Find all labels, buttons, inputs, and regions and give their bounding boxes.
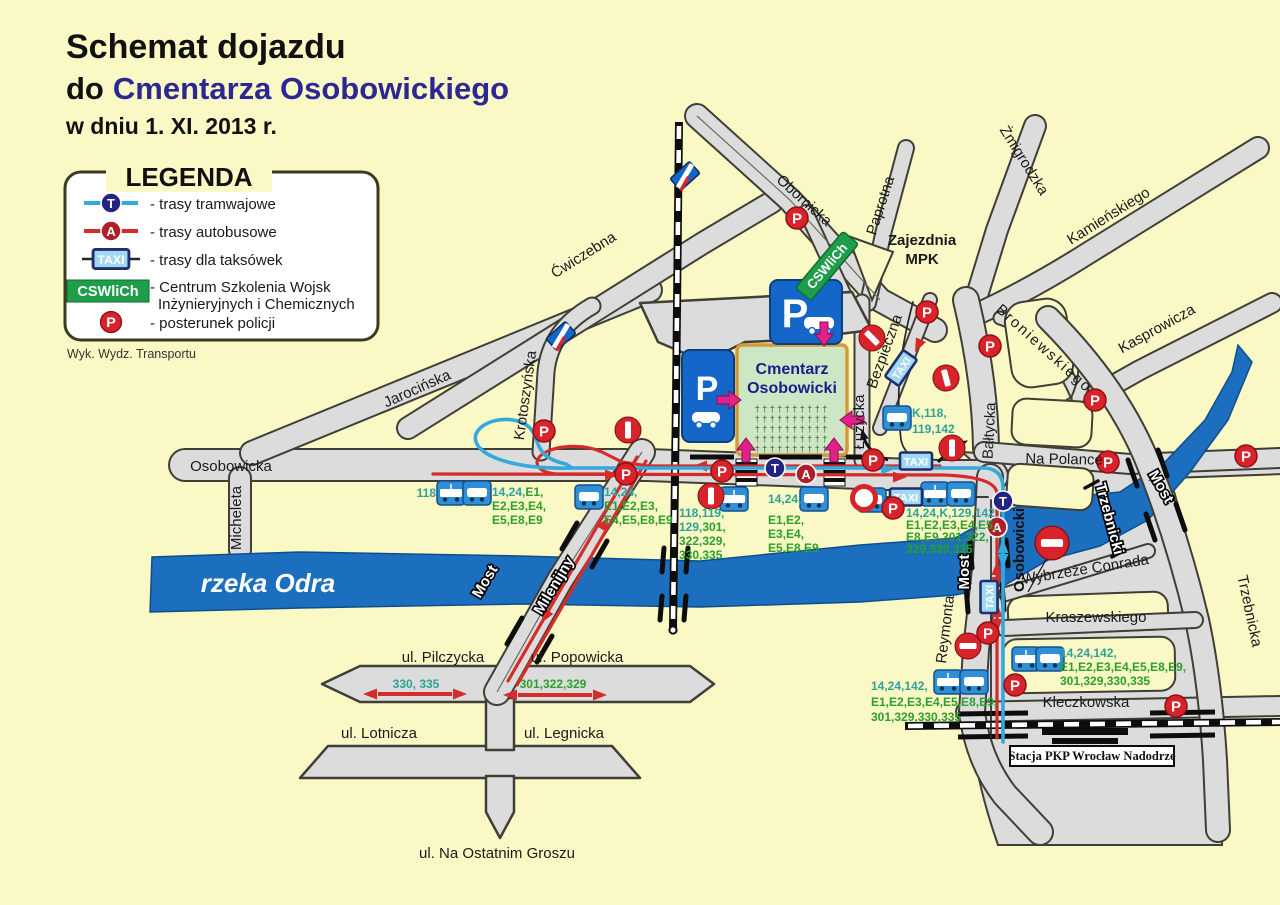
svg-text:E1,E2,: E1,E2, xyxy=(768,513,804,527)
taxi-badge xyxy=(900,453,932,470)
svg-text:E1,E2,E3,: E1,E2,E3, xyxy=(604,499,658,513)
street-label-osobowicka: Osobowicka xyxy=(190,458,272,475)
svg-text:† † † † † † † † † †: † † † † † † † † † † xyxy=(755,434,828,444)
street-label-micheleta: Micheleta xyxy=(228,485,245,550)
svg-text:301,329,330,335: 301,329,330,335 xyxy=(871,710,961,724)
river-label: rzeka Odra xyxy=(201,568,335,598)
street-label-pilczycka: ul. Pilczycka xyxy=(402,649,485,666)
cemetery-name-line2: Osobowicki xyxy=(747,380,837,397)
route-label-west2: 14,24, xyxy=(604,485,637,499)
svg-text:E5,E8,E9: E5,E8,E9 xyxy=(768,541,819,555)
no-entry-sign xyxy=(615,417,641,443)
svg-text:E4,E5,E8,E9: E4,E5,E8,E9 xyxy=(604,513,673,527)
cemetery-crosses: † † † † † † † † † † † † † † † † † † † † … xyxy=(755,404,828,454)
legend-police-text: - posterunek policji xyxy=(150,315,275,332)
map-canvas: P T A TAXI xyxy=(0,0,1280,905)
street-label-na-ostatnim-groszu: ul. Na Ostatnim Groszu xyxy=(419,845,575,862)
street-label-kraszewskiego: Kraszewskiego xyxy=(1046,609,1147,626)
route-label-k118: K,118, xyxy=(912,406,947,420)
street-label-kleczkowska: Kleczkowska xyxy=(1043,694,1130,711)
station-label: Stacja PKP Wrocław Nadodrze xyxy=(1009,749,1176,763)
block-kasprowicza xyxy=(1011,398,1093,448)
bridge-label-osobowicki-most: Most xyxy=(956,555,973,590)
legend-cswlich-text1: - Centrum Szkolenia Wojsk xyxy=(150,279,331,296)
route-label-kleczkowska: 14,24,142, xyxy=(1060,646,1117,660)
route-label-reymonta: 14,24,142, xyxy=(871,679,928,693)
legend-taxi-text: - trasy dla taksówek xyxy=(150,252,283,269)
street-label-popowicka: ul. Popowicka xyxy=(531,649,624,666)
legend-tram-badge xyxy=(101,193,121,213)
route-label-center: 118,119, xyxy=(679,506,724,520)
street-label-na-polance: Na Polance xyxy=(1025,450,1103,468)
cemetery-name-line1: Cmentarz xyxy=(756,361,829,378)
svg-text:E3,E4,: E3,E4, xyxy=(768,527,804,541)
legend-tram-text: - trasy tramwajowe xyxy=(150,196,276,213)
title-line2: doCmentarza Osobowickiego xyxy=(66,71,509,106)
svg-text:322,329,: 322,329, xyxy=(679,534,726,548)
depot-label-line2: MPK xyxy=(905,251,939,268)
legend-cswlich-text2: Inżynieryjnych i Chemicznych xyxy=(158,296,355,313)
bridge-label-osobowicki-name: Osobowicki xyxy=(1011,508,1028,592)
tram-badge xyxy=(765,458,785,478)
svg-text:† † † † † † † † † †: † † † † † † † † † † xyxy=(755,424,828,434)
title-line1: Schemat dojazdu xyxy=(66,28,346,66)
pkp-station: Stacja PKP Wrocław Nadodrze xyxy=(1009,746,1176,766)
legend-bus-badge xyxy=(101,221,121,241)
legend-police-badge xyxy=(101,312,122,333)
svg-text:E5,E8,E9: E5,E8,E9 xyxy=(492,513,543,527)
svg-text:E2,E3,E4,: E2,E3,E4, xyxy=(492,499,546,513)
parking-letter: P xyxy=(782,292,809,336)
svg-text:129,301,: 129,301, xyxy=(679,520,726,534)
route-label-pilczycka: 330, 335 xyxy=(393,677,440,691)
road-lotnicza-legnicka xyxy=(300,746,640,778)
svg-text:† † † † † † † † † †: † † † † † † † † † † xyxy=(755,414,828,424)
route-label-popowicka: 301,322,329 xyxy=(520,677,587,691)
svg-text:† † † † † † † † † †: † † † † † † † † † † xyxy=(755,404,828,414)
parking-letter: P xyxy=(696,370,719,408)
svg-text:E1,E2,E3,E4,E5,E8,E9,: E1,E2,E3,E4,E5,E8,E9, xyxy=(871,695,997,709)
map-page: P T A TAXI xyxy=(0,0,1280,905)
route-label-118: 118 xyxy=(417,486,437,500)
svg-text:301,329,330,335: 301,329,330,335 xyxy=(1060,674,1150,688)
legend-taxi-badge xyxy=(93,249,129,268)
bus-badge xyxy=(796,464,816,484)
street-label-baltycka: Bałtycka xyxy=(980,401,1000,459)
svg-text:329,330,335: 329,330,335 xyxy=(906,542,973,556)
svg-text:119,142: 119,142 xyxy=(912,422,955,436)
no-entry-sign xyxy=(1035,526,1069,560)
taxi-badge xyxy=(981,581,998,613)
street-label-luzycka: Łużycka xyxy=(851,394,868,450)
legend-footnote: Wyk. Wydz. Transportu xyxy=(67,347,196,361)
svg-text:† † † † † † † † † †: † † † † † † † † † † xyxy=(755,444,828,454)
no-entry-sign xyxy=(939,435,965,461)
depot-label-line1: Zajezdnia xyxy=(888,232,957,249)
title-line3: w dniu 1. XI. 2013 r. xyxy=(65,113,277,139)
route-label-east: 14,24, xyxy=(768,492,801,506)
svg-text:330,335: 330,335 xyxy=(679,548,723,562)
legend-heading: LEGENDA xyxy=(125,162,252,192)
street-label-legnicka: ul. Legnicka xyxy=(524,725,605,742)
svg-text:E1,E2,E3,E4,E5,E8,E9,: E1,E2,E3,E4,E5,E8,E9, xyxy=(1060,660,1186,674)
legend-bus-text: - trasy autobusowe xyxy=(150,224,277,241)
legend-cswlich-label: CSWliCh xyxy=(77,284,138,300)
route-label-west1: 14,24,E1, xyxy=(492,485,543,499)
legend-panel: LEGENDA - trasy tramwajowe - trasy autob… xyxy=(65,160,378,340)
no-vehicles-sign xyxy=(853,487,876,510)
road-connector-south xyxy=(486,698,514,750)
street-label-lotnicza: ul. Lotnicza xyxy=(341,725,418,742)
